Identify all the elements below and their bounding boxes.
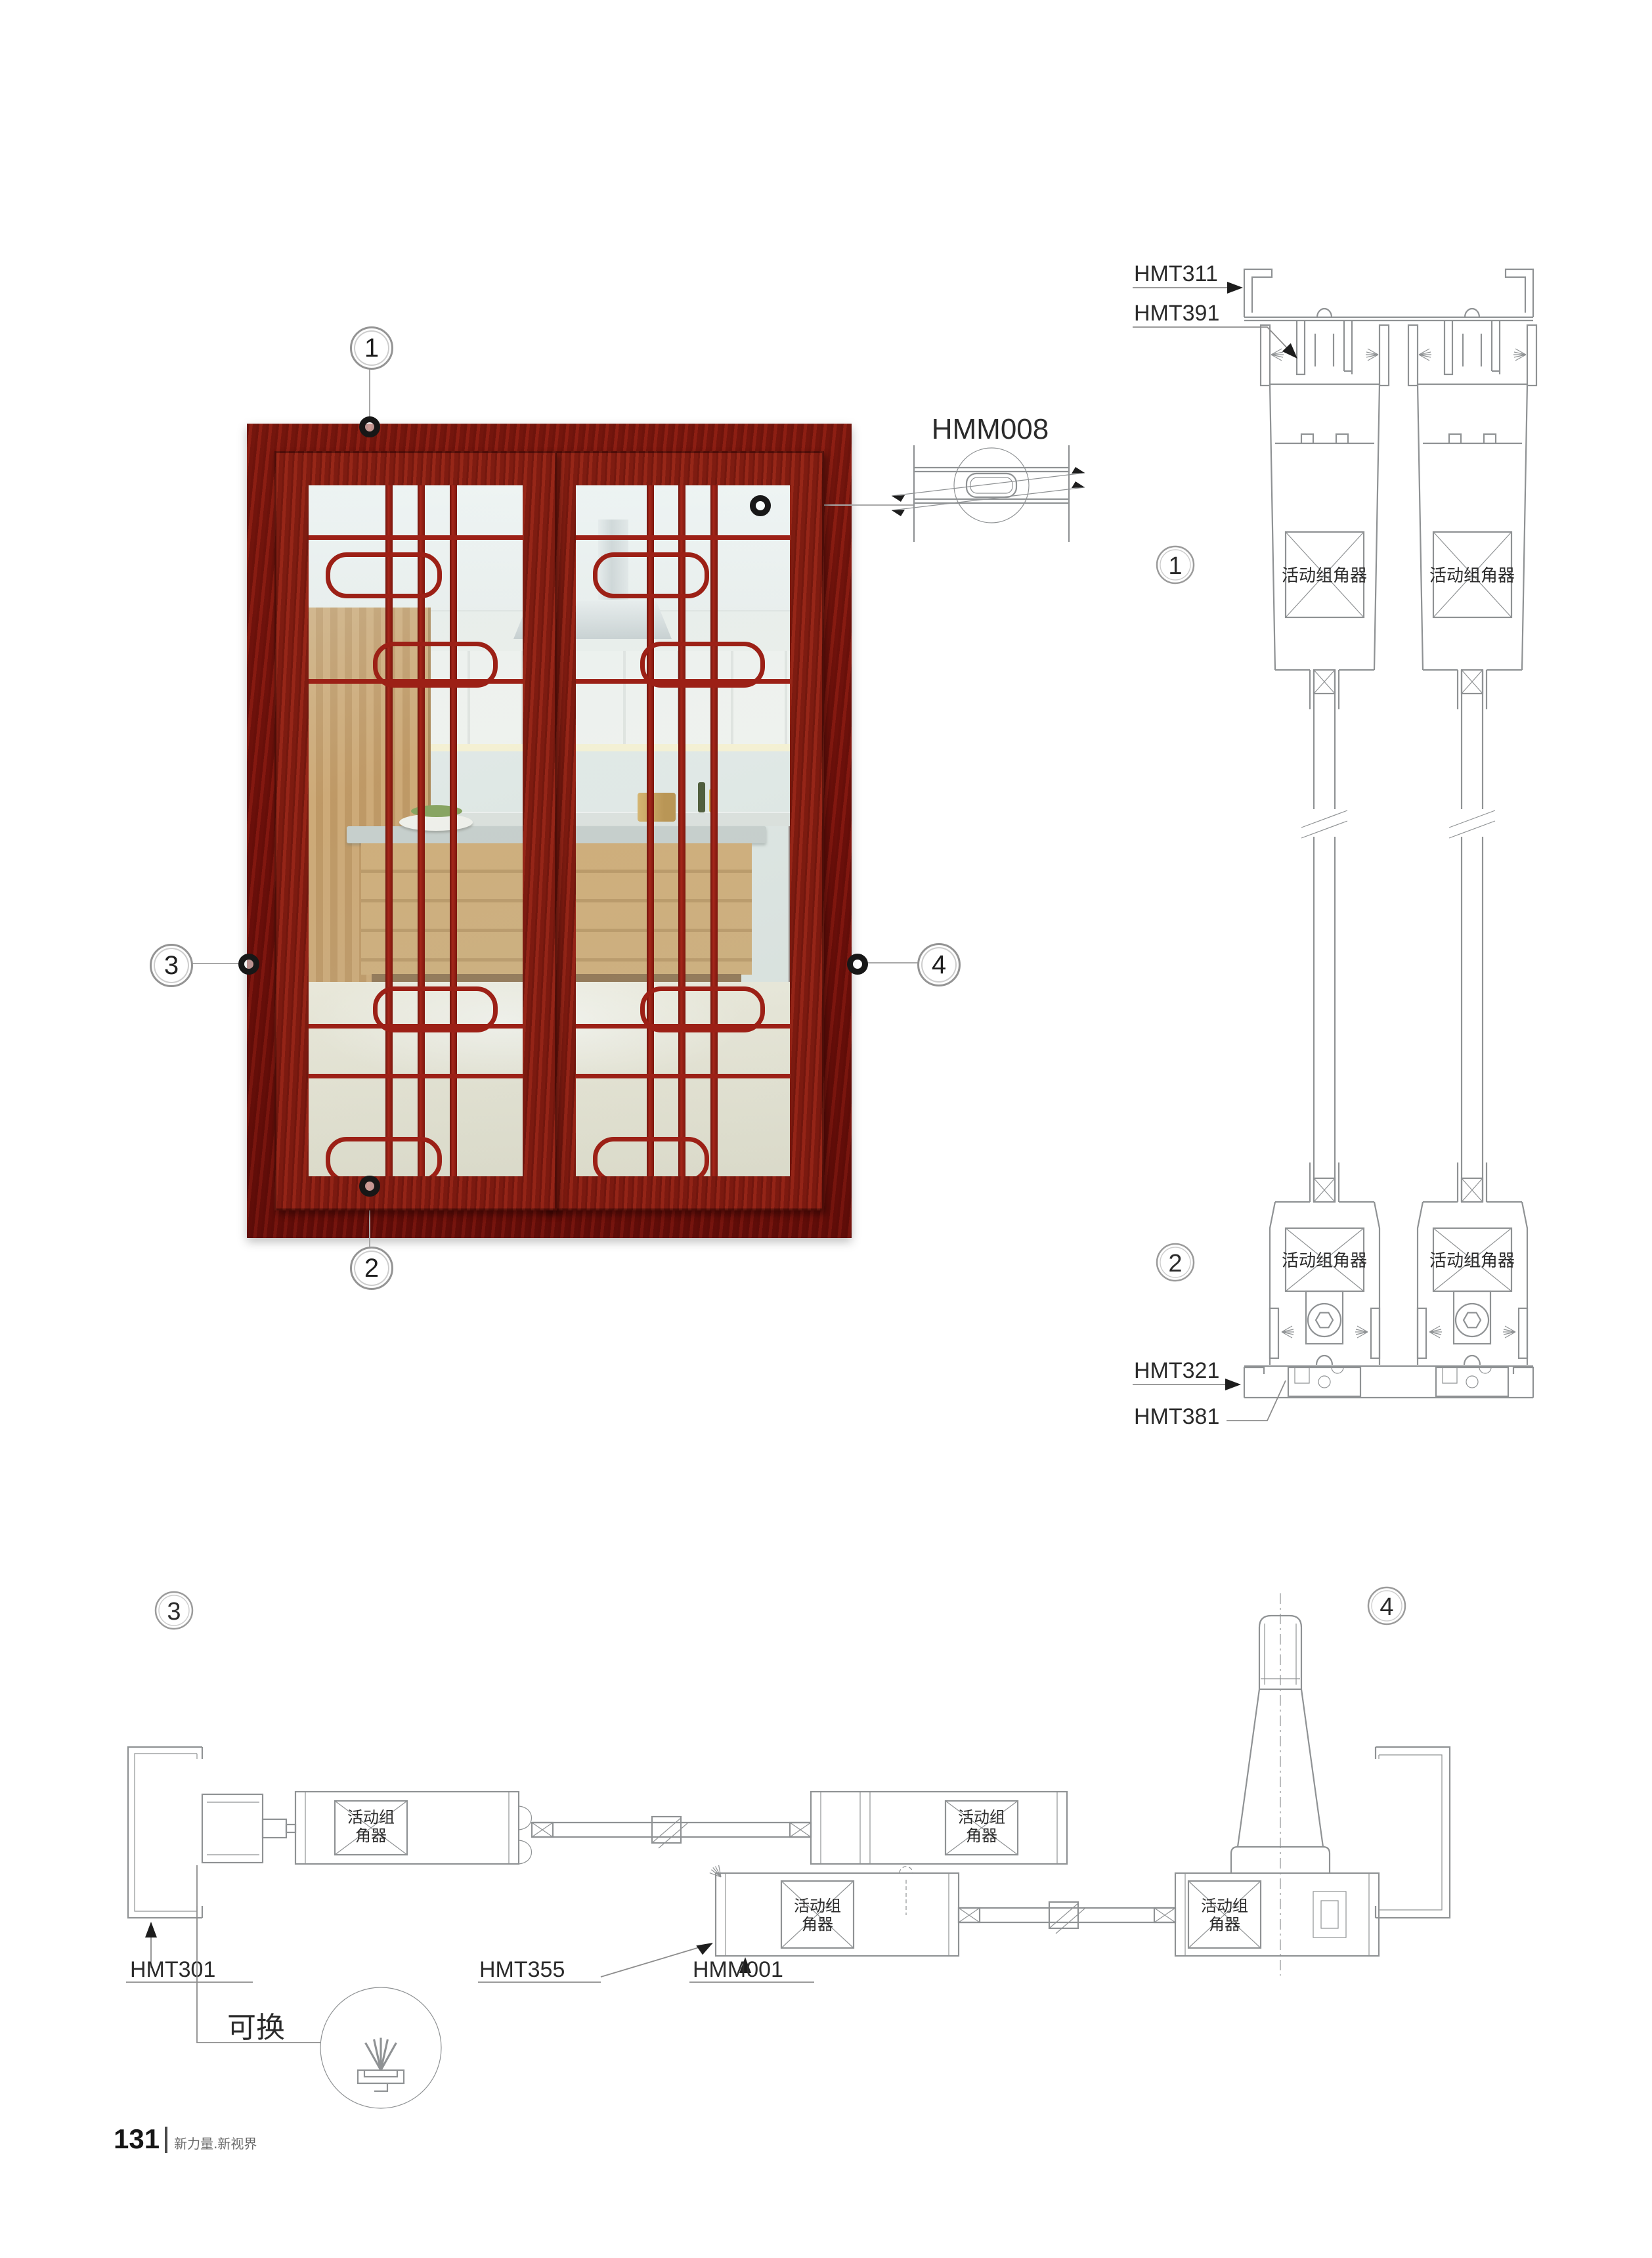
brush-seal-icon (1366, 349, 1378, 361)
head-track-soffit (1244, 317, 1533, 321)
detail-circle (954, 448, 1029, 523)
sliding-door-photo (247, 424, 852, 1238)
brush-seal-icon (1355, 1326, 1368, 1338)
sill-insert-left (1288, 1367, 1360, 1396)
hmt391-leader (1133, 327, 1292, 353)
corner-connector-label: 活动组角器 (1282, 1251, 1367, 1271)
label-replaceable: 可换 (227, 2011, 285, 2045)
section-callout-3-number: 3 (167, 1598, 181, 1626)
photo-callout-4: 4 (917, 943, 961, 986)
arrowhead (1072, 481, 1085, 488)
head-track-left-hook (1244, 269, 1272, 317)
door-glass-left (309, 485, 523, 1176)
grille-horizontal-bar (576, 535, 790, 540)
corner-connector-label: 活动组 (794, 1897, 841, 1915)
head-track-bosses (1317, 309, 1479, 317)
sash-section-right (1408, 321, 1536, 1365)
door-glass-right (576, 485, 790, 1176)
grille-horizontal-bar (309, 1074, 523, 1078)
corner-connector-label: 角器 (1209, 1915, 1240, 1934)
muntin-marker (750, 495, 771, 516)
glass-run-B (959, 1902, 1175, 1934)
corner-connector-label: 角器 (355, 1826, 387, 1845)
door-panel-left (274, 451, 557, 1210)
sash-stile-A1 (295, 1792, 532, 1864)
callout-4-leader (865, 962, 918, 963)
sash-section-left (1261, 321, 1389, 1365)
arrowhead (145, 1922, 157, 1937)
door-handle-profile (1231, 1593, 1330, 1976)
left-jamb-profile (128, 1747, 202, 1918)
label-hmt381: HMT381 (1134, 1404, 1219, 1429)
page-number: 131 (114, 2125, 160, 2153)
horizontal-section-drawing: 3 4 活动组 角器 (98, 1550, 1543, 2128)
right-jamb-profile (1376, 1747, 1450, 1918)
section-callout-2-number: 2 (1168, 1250, 1182, 1277)
section-callout-4-number: 4 (1380, 1593, 1393, 1621)
corner-connector-label: 活动组 (1201, 1897, 1248, 1915)
door-frame-opening (274, 451, 824, 1210)
grille-horizontal-bar (576, 1074, 790, 1078)
glass-plane-lines (892, 473, 1085, 510)
vertical-section-drawing: 活动组角器 活动组角器 活动组角器 活动组角器 HMT311 HMT391 1 (1110, 250, 1569, 1458)
corner-connector-label: 活动组 (958, 1808, 1005, 1826)
grille-vertical-bar (450, 485, 457, 1176)
section-marker-3 (238, 954, 259, 975)
grille-capsule (593, 1137, 709, 1176)
photo-callout-3: 3 (150, 944, 193, 987)
door-panel-right (542, 451, 824, 1210)
arrowhead (892, 495, 905, 502)
brush-seal-icon (1513, 349, 1526, 361)
label-hmt301: HMT301 (130, 1957, 215, 1982)
grille-horizontal-bar (576, 1024, 790, 1029)
label-hmt321: HMT321 (1134, 1358, 1219, 1383)
label-hmm001: HMM001 (693, 1957, 783, 1982)
muntin-detail-drawing: HMM008 (880, 407, 1097, 558)
footer-tagline: 新力量.新视界 (174, 2135, 257, 2153)
callout-number: 1 (364, 334, 379, 363)
grille-vertical-bar (710, 485, 718, 1176)
grille-horizontal-bar (309, 535, 523, 540)
arrowhead (1225, 1379, 1241, 1390)
brush-detail-circle (320, 1987, 441, 2108)
brush-seal-icon (1429, 1326, 1442, 1338)
grille-capsule (326, 552, 442, 598)
corner-connector-label: 活动组角器 (1429, 566, 1515, 586)
corner-connector-label: 活动组 (347, 1808, 395, 1826)
photo-callout-1: 1 (350, 326, 393, 370)
sill-insert-right (1436, 1367, 1508, 1396)
frame-receptor-profile (202, 1794, 295, 1863)
muntin-code-label: HMM008 (932, 413, 1049, 445)
brush-seal-icon (1503, 1326, 1515, 1338)
arrowhead (696, 1941, 715, 1956)
callout-3-leader (190, 963, 243, 964)
corner-connector-label: 活动组角器 (1429, 1251, 1515, 1271)
grille-capsule (593, 552, 709, 598)
brush-seal-icon (1419, 349, 1431, 361)
corner-connector-label: 角器 (966, 1826, 997, 1845)
arrowhead (1227, 282, 1243, 294)
section-marker-1 (359, 416, 380, 437)
corner-connector-label: 活动组角器 (1282, 566, 1367, 586)
glass-grille-left (309, 485, 523, 1176)
hmt355-leader (601, 1945, 706, 1977)
grille-horizontal-bar (309, 1024, 523, 1029)
head-track-right-hook (1506, 269, 1533, 317)
glass-run-A (532, 1817, 811, 1848)
page-footer: 131 新力量.新视界 (114, 2125, 257, 2153)
label-hmt311: HMT311 (1134, 261, 1218, 286)
brush-seal-icon (1282, 1326, 1294, 1338)
label-hmt391: HMT391 (1134, 301, 1219, 326)
callout-number: 4 (932, 950, 946, 980)
section-marker-4 (847, 954, 868, 975)
section-marker-2 (359, 1176, 380, 1197)
label-hmt355: HMT355 (479, 1957, 565, 1982)
brush-seal-icon (1271, 349, 1284, 361)
arrowhead (892, 510, 905, 516)
catalog-page: 1 2 3 4 HMM008 (0, 0, 1652, 2258)
photo-callout-2: 2 (350, 1247, 393, 1290)
brush-seal-icon (708, 1864, 726, 1881)
callout-1-leader (369, 366, 370, 421)
glass-grille-right (576, 485, 790, 1176)
meeting-stile-A2 (811, 1792, 1067, 1864)
corner-connector-label: 角器 (802, 1915, 833, 1934)
callout-number: 2 (364, 1254, 379, 1283)
arrowhead (1072, 467, 1085, 474)
grille-capsule (326, 1137, 442, 1176)
grille-horizontal-bar (576, 679, 790, 684)
footer-divider (165, 2127, 167, 2153)
callout-number: 3 (164, 951, 179, 981)
grille-horizontal-bar (309, 679, 523, 684)
section-callout-1-number: 1 (1168, 552, 1182, 580)
